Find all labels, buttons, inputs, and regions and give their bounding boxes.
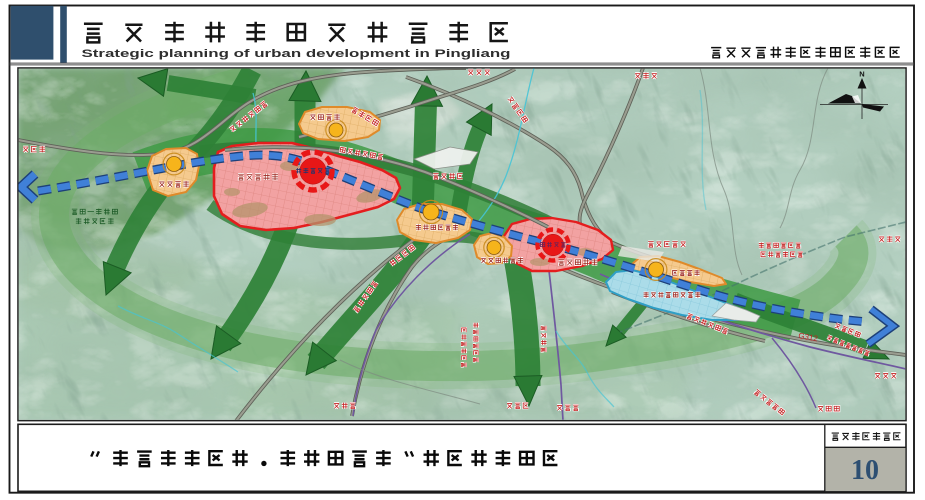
svg-text:Strategic planning of urban de: Strategic planning of urban development … [82,48,511,60]
svg-text:N: N [859,70,864,79]
svg-text:10: 10 [851,455,879,486]
